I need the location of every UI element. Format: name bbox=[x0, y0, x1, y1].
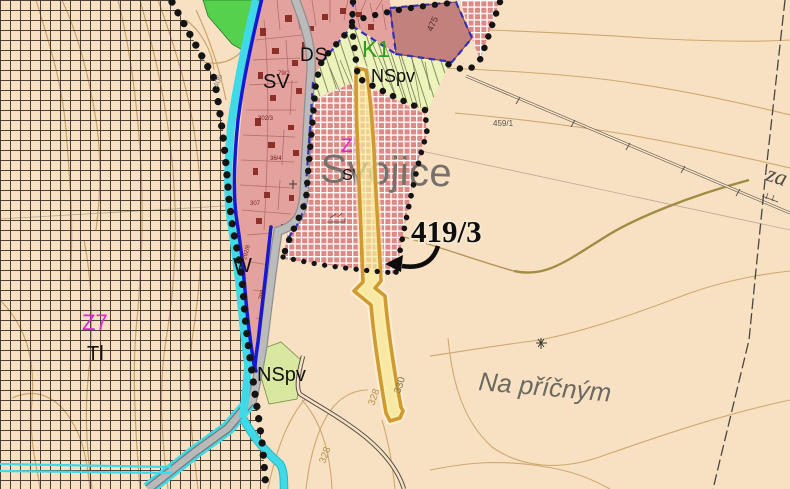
svg-text:DS: DS bbox=[300, 45, 328, 66]
svg-text:K1: K1 bbox=[362, 36, 390, 62]
svg-text:NSpv: NSpv bbox=[257, 364, 306, 386]
svg-text:36/4: 36/4 bbox=[270, 156, 282, 162]
svg-text:419/3: 419/3 bbox=[411, 214, 482, 249]
svg-text:Tl: Tl bbox=[87, 343, 104, 365]
svg-text:Svojice: Svojice bbox=[320, 147, 453, 196]
svg-text:307: 307 bbox=[250, 201, 261, 207]
svg-text:302/3: 302/3 bbox=[258, 116, 274, 122]
svg-text:459/1: 459/1 bbox=[493, 119, 514, 128]
svg-text:79/2: 79/2 bbox=[278, 71, 290, 77]
svg-text:Z7: Z7 bbox=[82, 310, 108, 335]
svg-text:NSpv: NSpv bbox=[371, 66, 415, 86]
